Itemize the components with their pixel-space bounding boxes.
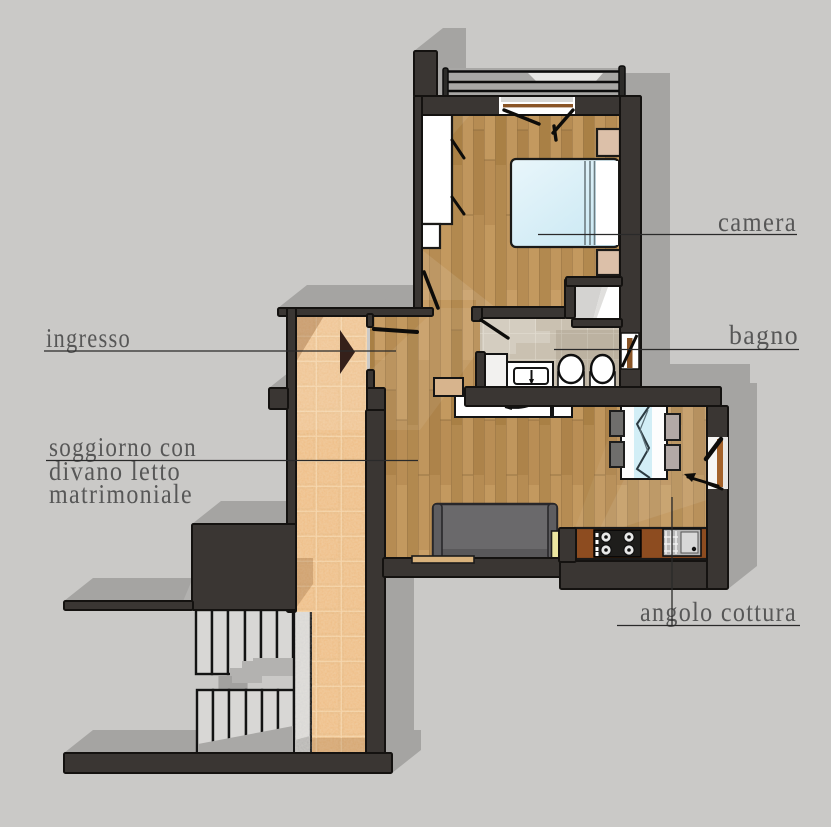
svg-text:bagno: bagno (729, 320, 799, 350)
svg-text:camera: camera (718, 207, 797, 237)
svg-text:matrimoniale: matrimoniale (49, 479, 193, 509)
svg-text:ingresso: ingresso (46, 323, 131, 353)
svg-text:angolo cottura: angolo cottura (640, 597, 797, 627)
